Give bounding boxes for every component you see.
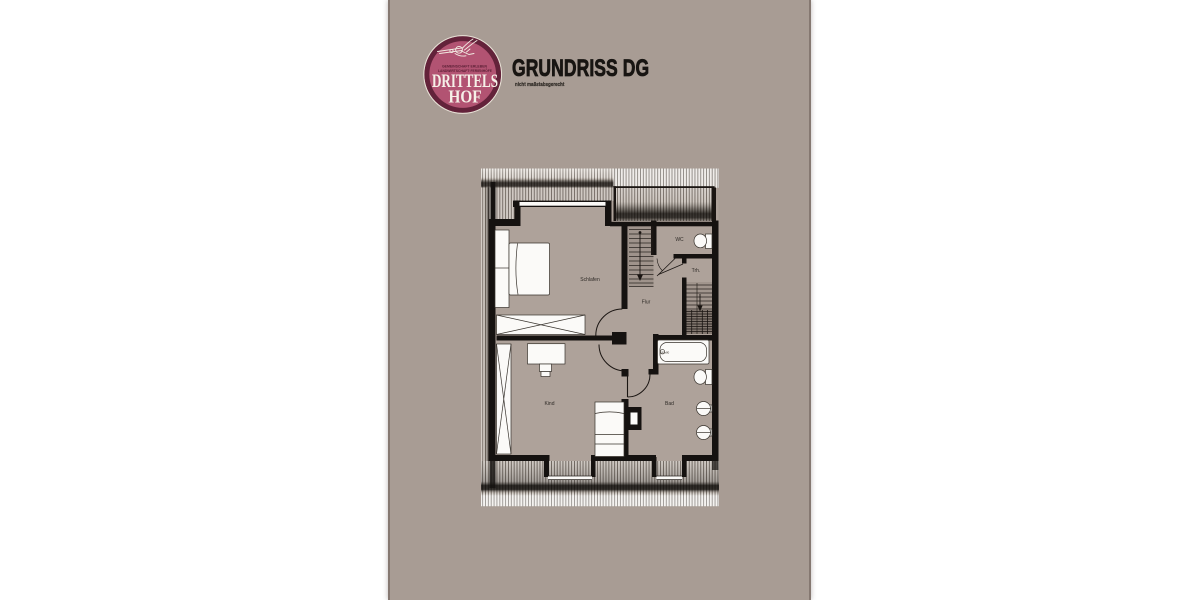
svg-text:Bad: Bad [665,401,674,407]
svg-text:Schlafen: Schlafen [580,277,600,283]
svg-text:Trh.: Trh. [692,268,701,274]
svg-text:Kind: Kind [544,401,554,407]
svg-text:HOF: HOF [449,87,482,107]
svg-text:WC: WC [675,237,684,243]
svg-text:180x80: 180x80 [660,351,670,355]
svg-text:GEMEINSCHAFT ERLEBEN: GEMEINSCHAFT ERLEBEN [442,64,487,68]
svg-text:Flur: Flur [642,300,651,306]
